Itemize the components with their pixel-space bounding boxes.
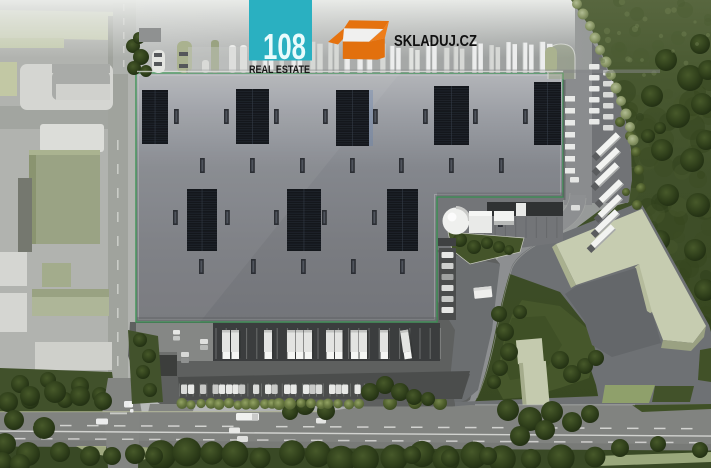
svg-text:108: 108 [263,26,306,67]
svg-text:REAL ESTATE: REAL ESTATE [249,64,310,76]
svg-text:SKLADUJ.CZ: SKLADUJ.CZ [394,33,477,50]
